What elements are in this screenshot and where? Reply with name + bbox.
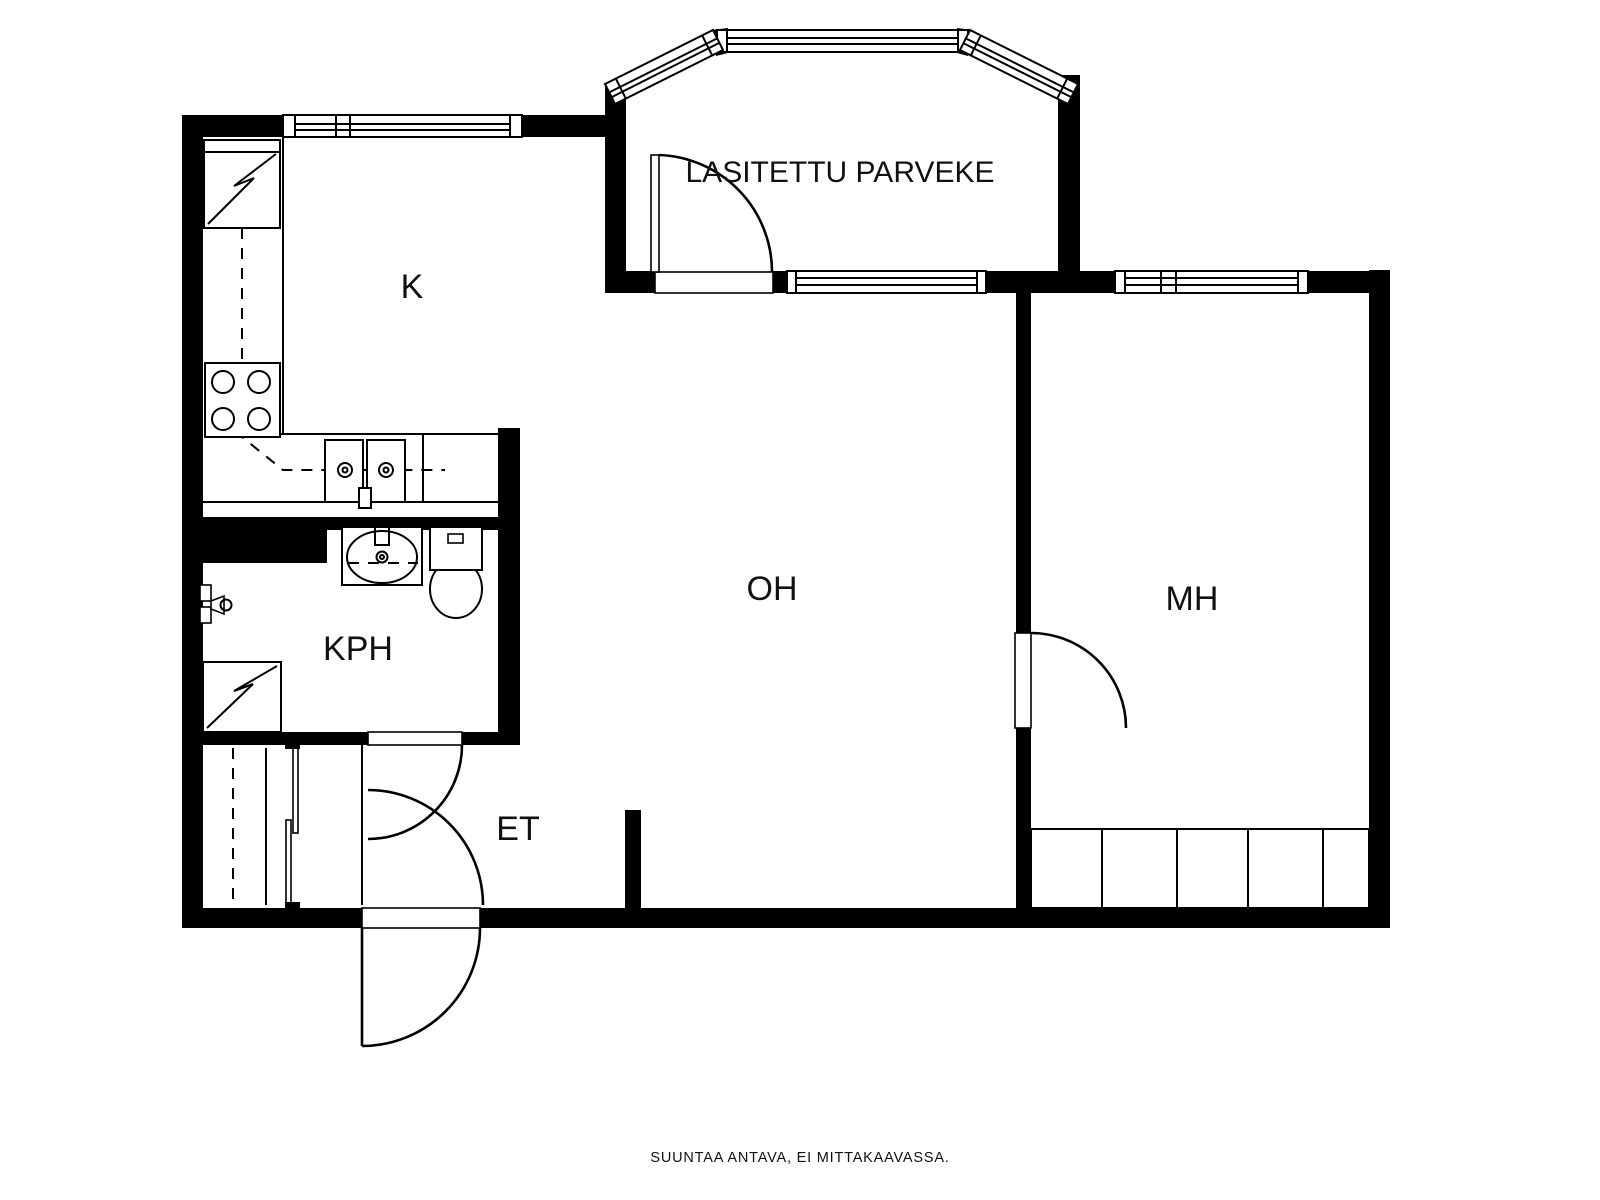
- sink-drain-tab: [359, 488, 371, 508]
- balcony-left-wall: [605, 85, 626, 293]
- entrance-door-threshold: [362, 908, 480, 928]
- living-bedroom-wall-upper: [1016, 292, 1031, 633]
- floor-plan-drawing: LASITETTU PARVEKE K OH MH KPH ET SUUNTAA…: [0, 0, 1600, 1200]
- bathroom-bottom-wall-right: [462, 732, 520, 745]
- entry-label: ET: [496, 810, 539, 848]
- balcony-door-threshold: [655, 272, 773, 293]
- sliding-door-panel-2: [286, 820, 291, 905]
- bedroom-window: [1115, 271, 1308, 293]
- sliding-door-panel-1: [293, 748, 298, 833]
- refrigerator-symbol: [204, 140, 280, 228]
- balcony-top-window: [717, 30, 968, 52]
- bathroom-bottom-wall-left: [182, 732, 368, 745]
- balcony-label: LASITETTU PARVEKE: [686, 156, 995, 189]
- balcony-bottom-wall-right: [984, 271, 1080, 293]
- bedroom-label: MH: [1166, 580, 1219, 618]
- left-exterior-wall: [182, 115, 203, 928]
- bathroom-top-wall-thick-block: [203, 517, 327, 563]
- washbasin-symbol: [342, 527, 422, 585]
- entry-stub-wall: [625, 810, 641, 908]
- bedroom-top-wall-right: [1308, 271, 1390, 293]
- floor-plan-page: LASITETTU PARVEKE K OH MH KPH ET SUUNTAA…: [0, 0, 1600, 1200]
- right-exterior-wall: [1369, 270, 1390, 928]
- living-balcony-window: [787, 271, 986, 293]
- entrance-door-outer-arc: [362, 928, 480, 1046]
- bathroom-label: KPH: [323, 630, 393, 668]
- stove-symbol: [205, 363, 280, 437]
- top-wall-left-segment: [182, 115, 283, 137]
- bottom-wall-right-segment: [480, 908, 1390, 928]
- balcony-bottom-wall-left: [605, 271, 655, 293]
- washing-machine-symbol: [203, 662, 281, 732]
- disclaimer-caption: SUUNTAA ANTAVA, EI MITTAKAAVASSA.: [650, 1150, 949, 1166]
- kitchen-label: K: [401, 268, 424, 306]
- bedroom-door-leaf: [1015, 633, 1031, 728]
- sliding-door-track-bottom: [285, 902, 300, 908]
- living-room-label: OH: [747, 570, 798, 608]
- bottom-wall-left-segment: [182, 908, 362, 928]
- bathroom-door-leaf: [368, 732, 462, 745]
- kitchen-bathroom-right-wall: [498, 428, 520, 745]
- balcony-door-leaf: [651, 155, 659, 272]
- balcony-right-wall: [1058, 75, 1080, 293]
- bedroom-top-wall-left: [1080, 271, 1116, 293]
- sliding-door-track-top: [285, 744, 300, 749]
- living-bedroom-wall-lower: [1016, 728, 1031, 908]
- kitchen-window: [283, 115, 522, 137]
